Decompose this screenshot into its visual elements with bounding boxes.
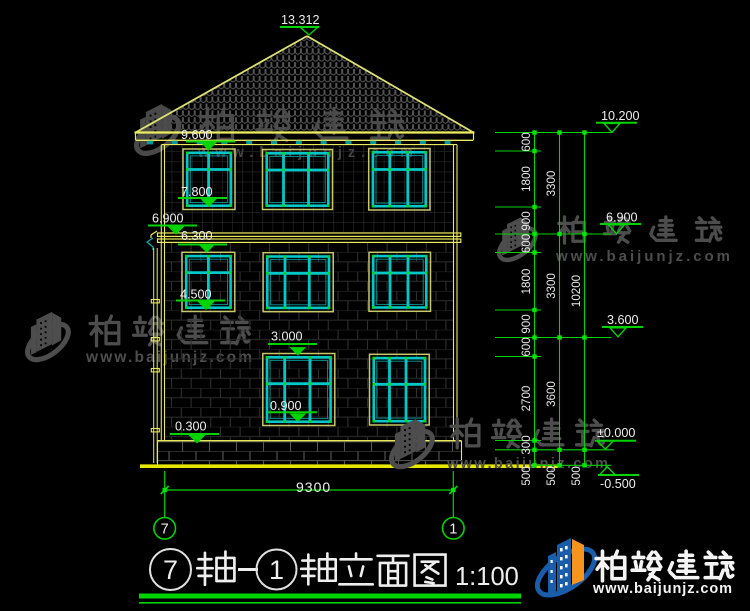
svg-text:3600: 3600 — [545, 381, 558, 407]
svg-text:600: 600 — [520, 234, 533, 253]
svg-text:10200: 10200 — [570, 275, 583, 307]
svg-text:4.500: 4.500 — [180, 288, 212, 302]
svg-text:13.312: 13.312 — [281, 13, 320, 27]
svg-text:3.000: 3.000 — [271, 330, 303, 344]
svg-text:7: 7 — [161, 522, 169, 538]
svg-text:9300: 9300 — [296, 479, 331, 495]
svg-text:±0.000: ±0.000 — [597, 426, 635, 440]
svg-text:1800: 1800 — [520, 269, 533, 295]
svg-text:500: 500 — [545, 466, 558, 485]
svg-text:0.300: 0.300 — [175, 420, 207, 434]
svg-text:500: 500 — [520, 466, 533, 485]
svg-text:600: 600 — [520, 132, 533, 151]
svg-text:1800: 1800 — [520, 166, 533, 192]
svg-text:600: 600 — [520, 337, 533, 356]
svg-text:1: 1 — [269, 555, 284, 585]
svg-text:www.baijunjz.com: www.baijunjz.com — [592, 581, 732, 597]
svg-text:1:100: 1:100 — [455, 563, 519, 591]
svg-text:6.300: 6.300 — [181, 229, 213, 243]
svg-text:7.800: 7.800 — [181, 185, 213, 199]
svg-text:500: 500 — [570, 466, 583, 485]
svg-text:300: 300 — [520, 435, 533, 454]
svg-text:3.600: 3.600 — [607, 313, 639, 327]
svg-text:900: 900 — [520, 314, 533, 333]
svg-text:2700: 2700 — [520, 386, 533, 412]
svg-text:6.900: 6.900 — [152, 212, 184, 226]
svg-text:6.900: 6.900 — [606, 211, 638, 225]
svg-text:1: 1 — [449, 522, 457, 538]
svg-text:-0.500: -0.500 — [600, 477, 636, 491]
svg-text:9.600: 9.600 — [181, 128, 213, 142]
svg-text:0.900: 0.900 — [270, 399, 302, 413]
svg-text:3300: 3300 — [545, 171, 558, 197]
svg-text:3300: 3300 — [545, 273, 558, 299]
svg-text:10.200: 10.200 — [601, 109, 640, 123]
svg-text:7: 7 — [163, 555, 178, 585]
svg-text:900: 900 — [520, 211, 533, 230]
